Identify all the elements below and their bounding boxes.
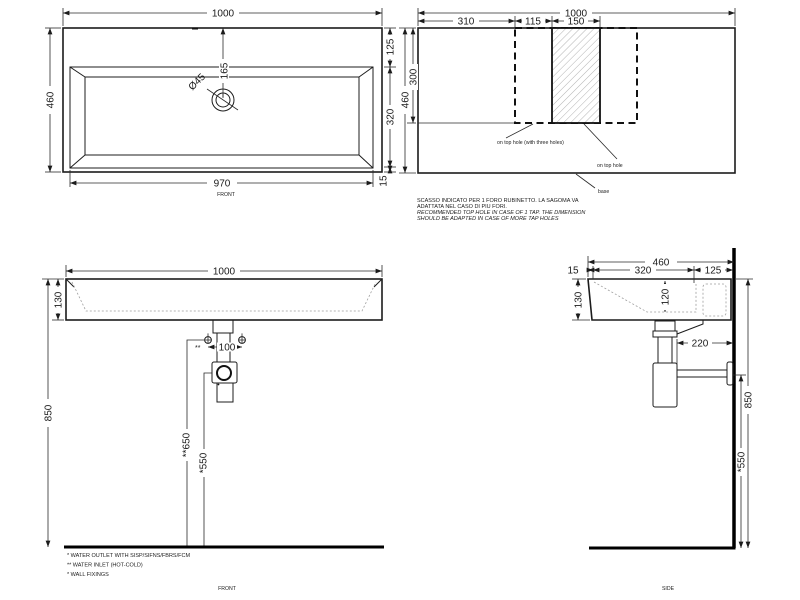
technical-drawing-sheet: Ø45 165 1000 460 125 [0, 0, 800, 600]
dim-side-height: 850 [744, 391, 755, 408]
tap-hole-note: SCASSO INDICATO PER 1 FORO RUBINETTO. LA… [417, 198, 585, 222]
front-basin-hidden-line [72, 282, 376, 311]
label-base: base [598, 189, 609, 195]
dim-plan-depth: 460 [46, 91, 57, 108]
dim-side-outlet-height: *550 [737, 451, 748, 472]
note-wall-fixings: * WALL FIXINGS [67, 572, 109, 578]
top-hole-leader [584, 124, 617, 159]
note-english-2: SHOULD BE ADAPTED IN CASE OF MORE TAP HO… [417, 216, 559, 222]
dim-hole-gap: 115 [525, 17, 541, 28]
dim-side-front-lip: 15 [567, 266, 579, 277]
plan-view-label: FRONT [217, 192, 236, 198]
note-water-inlet: ** WATER INLET (HOT-COLD) [67, 563, 143, 569]
dim-hole-offset: 165 [220, 62, 231, 79]
dim-plan-basin-depth: 320 [386, 108, 397, 125]
dim-outlet-height: *550 [199, 452, 210, 473]
side-basin-hidden-line [594, 282, 696, 312]
note-water-outlet: * WATER OUTLET WITH SISP/SIFNS/FBRS/FCM [67, 553, 190, 559]
label-top-hole: on top hole [597, 163, 623, 169]
plan-view: Ø45 165 1000 460 125 [45, 8, 397, 198]
inlet-note-marker: ** [195, 345, 201, 352]
side-siphon [653, 321, 733, 407]
dim-side-mid: 320 [635, 266, 652, 277]
dim-front-width: 1000 [213, 267, 236, 278]
dim-plan-back: 125 [386, 38, 397, 55]
dim-hole-diameter: Ø45 [187, 71, 208, 92]
side-view-label: SIDE [662, 586, 675, 592]
dim-hole-zone-depth: 300 [409, 68, 420, 85]
side-underside [677, 320, 703, 334]
water-inlet-symbol-right [239, 333, 246, 343]
base-leader [576, 174, 595, 188]
dim-tap-depth: 460 [401, 91, 412, 108]
water-inlet-symbol-left [205, 333, 212, 343]
dim-plan-width: 1000 [212, 9, 235, 20]
dim-hole-zone-width: 150 [568, 17, 585, 28]
washbasin-drawing: Ø45 165 1000 460 125 [0, 0, 800, 600]
front-siphon [212, 320, 237, 402]
dim-trap-to-wall: 220 [692, 339, 709, 350]
dim-front-body-height: 130 [54, 291, 65, 308]
dim-plan-inner-width: 970 [214, 179, 231, 190]
dim-inlet-spacing: 100 [219, 343, 236, 354]
three-holes-leader [506, 124, 533, 138]
waste-pipe-to-wall [677, 370, 727, 377]
tap-hole-plan-view: 1000 310 115 150 460 300 on top hole (wi… [399, 8, 735, 222]
dim-front-height: 850 [44, 404, 55, 421]
single-hole-zone [552, 28, 600, 123]
side-body [588, 279, 731, 320]
dim-side-back: 125 [705, 266, 722, 277]
dim-bowl-depth: 120 [661, 288, 672, 305]
plan-outer-edge [63, 28, 382, 172]
front-body [66, 279, 382, 320]
side-back-ledge-hidden [703, 284, 726, 316]
dim-offset-left: 310 [458, 17, 475, 28]
dim-side-body-height: 130 [574, 291, 585, 308]
front-notes: * WATER OUTLET WITH SISP/SIFNS/FBRS/FCM … [67, 553, 190, 578]
wall-outlet-flange [727, 362, 733, 385]
side-view: 460 15 320 125 130 120 220 [567, 248, 754, 592]
front-view: ** 100 **650 *550 850 130 [42, 265, 384, 592]
dim-inlet-height: **650 [182, 432, 193, 457]
label-three-holes: on top hole (with three holes) [497, 140, 564, 146]
dim-plan-front-lip: 15 [379, 175, 390, 187]
front-view-label: FRONT [218, 586, 237, 592]
